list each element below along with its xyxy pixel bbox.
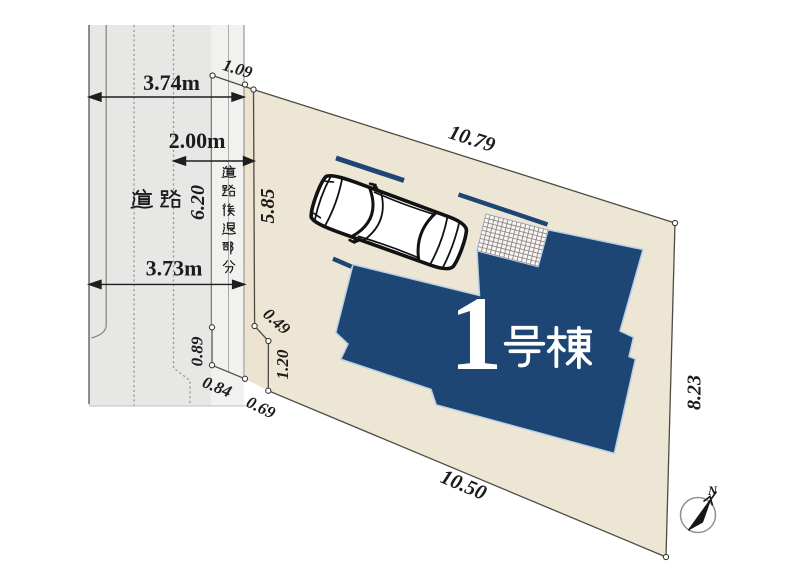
svg-text:3.74m: 3.74m: [143, 70, 200, 95]
svg-text:5.85: 5.85: [257, 189, 279, 224]
svg-text:3.73m: 3.73m: [146, 256, 203, 281]
svg-text:8.23: 8.23: [684, 375, 706, 410]
svg-text:1: 1: [450, 275, 503, 392]
svg-text:2.00m: 2.00m: [169, 128, 226, 153]
svg-text:1.20: 1.20: [273, 349, 292, 379]
svg-text:0.89: 0.89: [188, 336, 207, 366]
svg-text:6.20: 6.20: [187, 185, 209, 220]
svg-text:N: N: [707, 484, 718, 498]
